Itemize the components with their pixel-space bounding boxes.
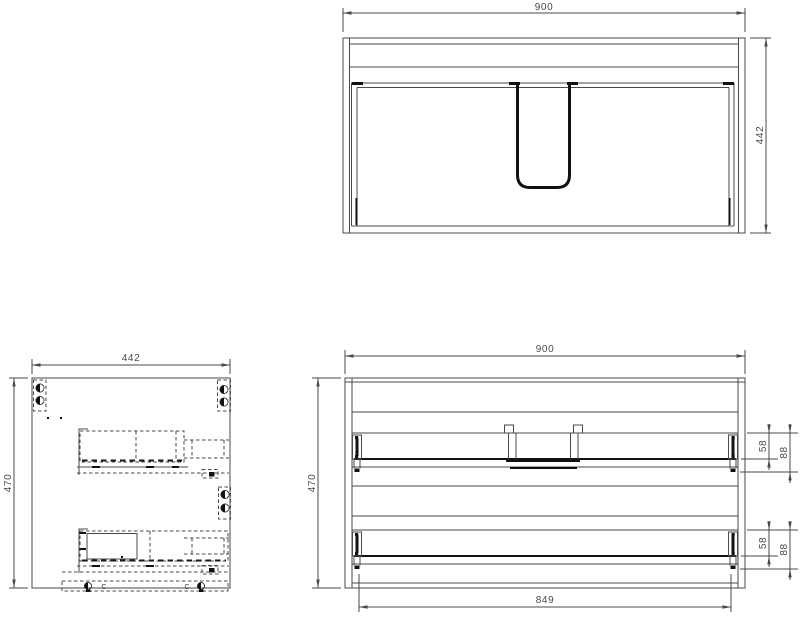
technical-drawing-sheet: 900 442: [0, 0, 800, 624]
side-view-height-label: 470: [3, 474, 14, 493]
wall-bracket-mid-right: [219, 487, 231, 519]
back-view-width-label: 900: [536, 344, 555, 355]
side-view: 442 470: [3, 353, 231, 592]
top-view-depth-dimension: 442: [750, 38, 771, 233]
upper-drawer-runner: [77, 429, 229, 478]
upper-rail-height-label: 88: [779, 446, 790, 458]
top-view: 900 442: [343, 2, 771, 233]
slide-clip-lower-left: [353, 532, 362, 569]
lower-drawer-runner: [62, 529, 229, 574]
back-view-width-dimension: 900: [345, 344, 745, 374]
back-view-height-label: 470: [307, 474, 318, 493]
side-view-width-dimension: 442: [32, 353, 230, 374]
side-view-height-dimension: 470: [3, 378, 28, 588]
side-view-width-label: 442: [122, 353, 141, 364]
back-view-drawer-width-dimension: 849: [359, 574, 731, 612]
bottom-fixing-strip: C C: [62, 581, 228, 592]
lower-rail-dimensions: 58 88: [740, 521, 798, 580]
back-view-cabinet-outline: [345, 378, 745, 588]
top-view-cabinet-outline: [343, 38, 745, 233]
top-view-width-dimension: 900: [343, 2, 745, 32]
slide-clip-lower-right: [729, 532, 738, 569]
wall-bracket-top-left: [34, 380, 47, 411]
clip-mark-left: C: [101, 584, 106, 591]
lower-rail-height-label: 88: [779, 543, 790, 555]
clip-mark-right: C: [184, 584, 189, 591]
upper-rail-dimensions: 58 88: [740, 424, 798, 483]
slide-clip-upper-left: [353, 435, 362, 472]
upper-rail-offset-label: 58: [758, 440, 769, 452]
top-view-depth-label: 442: [755, 126, 766, 145]
slide-clip-upper-right: [729, 435, 738, 472]
back-view-height-dimension: 470: [307, 378, 341, 588]
siphon-cutout: [518, 84, 570, 188]
back-view: 900 470 849: [307, 344, 798, 612]
lower-rail-offset-label: 58: [758, 537, 769, 549]
back-view-drawer-width-label: 849: [536, 595, 555, 606]
top-view-width-label: 900: [535, 2, 554, 13]
side-view-cabinet-outline: C C: [32, 378, 231, 592]
wall-bracket-top-right: [218, 380, 231, 411]
siphon-recess: [505, 425, 583, 468]
